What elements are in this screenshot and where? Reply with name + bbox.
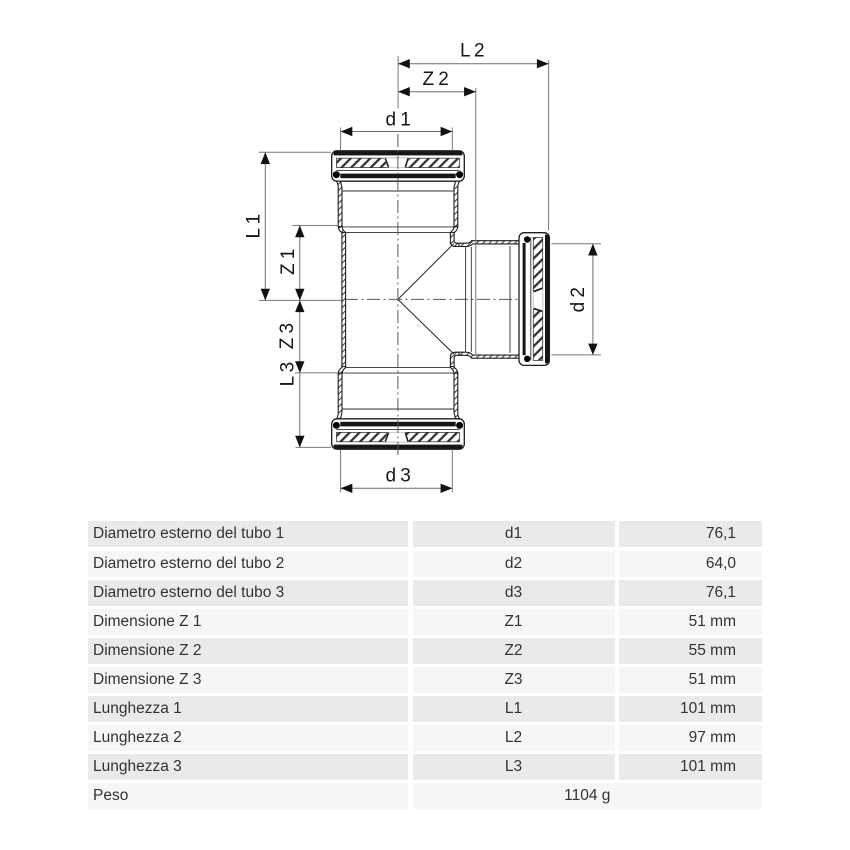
svg-text:L 2: L 2 <box>460 41 484 62</box>
svg-text:d 1: d 1 <box>386 110 411 131</box>
svg-text:d 3: d 3 <box>386 466 411 487</box>
svg-text:d 2: d 2 <box>568 288 589 313</box>
svg-text:Z 1: Z 1 <box>278 249 299 275</box>
svg-text:Z 3: Z 3 <box>277 323 298 349</box>
svg-text:L 3: L 3 <box>278 362 299 386</box>
svg-text:Z 2: Z 2 <box>423 69 449 90</box>
svg-text:L 1: L 1 <box>244 214 265 238</box>
